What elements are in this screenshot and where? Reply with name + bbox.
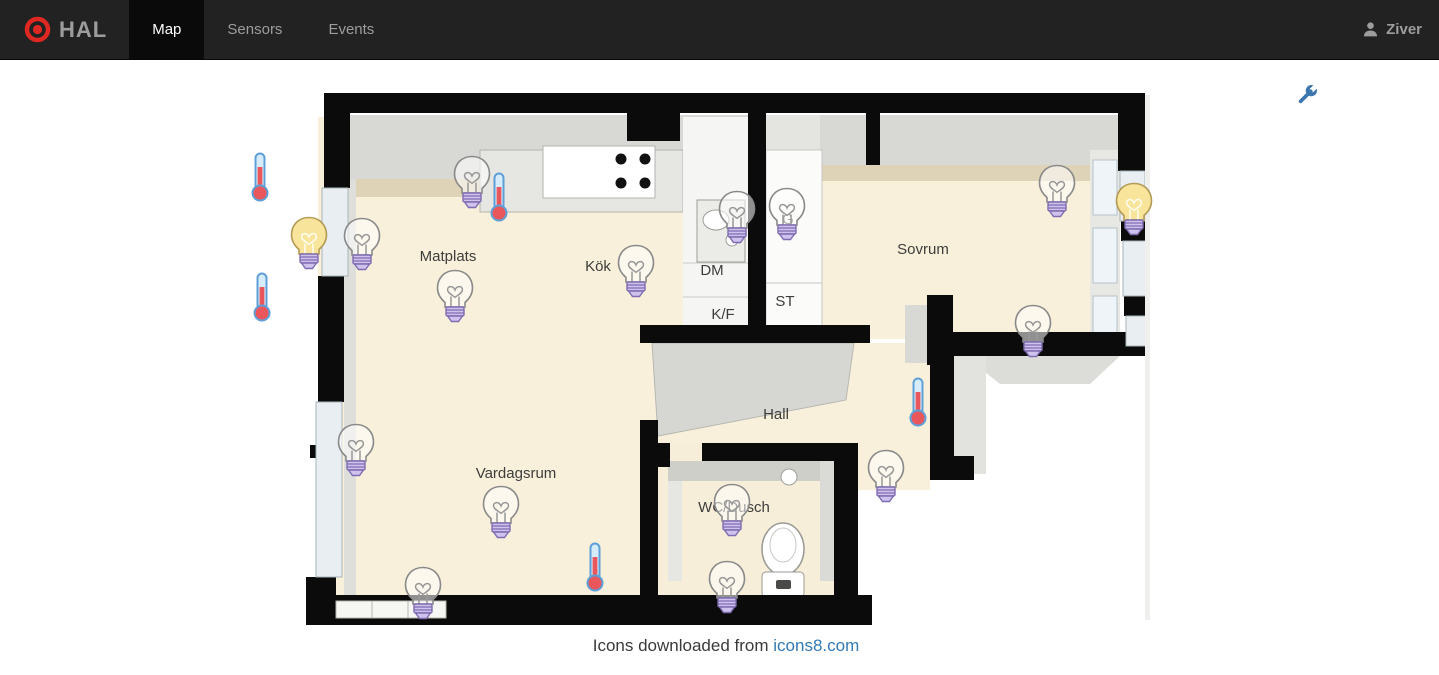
room-label-vardagsrum: Vardagsrum bbox=[476, 465, 557, 482]
sensor-light-hall[interactable] bbox=[865, 449, 907, 503]
sensor-light-wc-south[interactable] bbox=[706, 560, 748, 614]
nav-tabs: Map Sensors Events bbox=[129, 0, 397, 59]
floorplan-image: MatplatsKökDMK/FSTGSovrumHallVardagsrumW… bbox=[300, 88, 1152, 630]
sensor-light-sovrum-window[interactable] bbox=[1036, 164, 1078, 218]
room-label-st: ST bbox=[775, 293, 794, 310]
navbar: HAL Map Sensors Events Ziver bbox=[0, 0, 1439, 60]
sensor-light-sovrum-wall-on[interactable] bbox=[1113, 182, 1155, 236]
brand[interactable]: HAL bbox=[0, 0, 129, 59]
sensor-light-kok[interactable] bbox=[615, 244, 657, 298]
tab-events[interactable]: Events bbox=[305, 0, 397, 59]
sensor-light-left-wall-on[interactable] bbox=[288, 216, 330, 270]
room-label-hall: Hall bbox=[763, 406, 789, 423]
sensor-light-left-wall-off[interactable] bbox=[341, 217, 383, 271]
tab-sensors[interactable]: Sensors bbox=[204, 0, 305, 59]
sensor-light-vardagsrum[interactable] bbox=[480, 485, 522, 539]
sensor-light-matplats-top[interactable] bbox=[451, 155, 493, 209]
target-logo-icon bbox=[24, 16, 51, 43]
sensor-thermometer-matplats[interactable] bbox=[488, 172, 510, 222]
user-menu[interactable]: Ziver bbox=[1362, 0, 1439, 59]
sensor-thermometer-left-lower[interactable] bbox=[251, 272, 273, 322]
brand-text: HAL bbox=[59, 17, 107, 43]
sensor-thermometer-left-upper[interactable] bbox=[249, 152, 271, 202]
sensor-light-vardagsrum-south[interactable] bbox=[402, 566, 444, 620]
room-label-k-k: Kök bbox=[585, 258, 611, 275]
settings-wrench-icon[interactable] bbox=[1294, 82, 1320, 108]
user-name: Ziver bbox=[1386, 21, 1422, 38]
app-screen: HAL Map Sensors Events Ziver bbox=[0, 0, 1439, 675]
room-label-matplats: Matplats bbox=[420, 248, 477, 265]
user-icon bbox=[1362, 21, 1379, 38]
sensor-light-sovrum-south[interactable] bbox=[1012, 304, 1054, 358]
sensor-light-kok-sink[interactable] bbox=[716, 190, 758, 244]
sensor-light-matplats[interactable] bbox=[434, 269, 476, 323]
room-label-sovrum: Sovrum bbox=[897, 241, 949, 258]
sensor-thermometer-vardagsrum[interactable] bbox=[584, 542, 606, 592]
tab-map[interactable]: Map bbox=[129, 0, 204, 59]
icons8-link[interactable]: icons8.com bbox=[773, 636, 859, 655]
room-label-k-f: K/F bbox=[711, 306, 734, 323]
sensor-light-wc[interactable] bbox=[711, 483, 753, 537]
sensor-light-vardagsrum-window[interactable] bbox=[335, 423, 377, 477]
caption-text: Icons downloaded from bbox=[593, 636, 769, 655]
footer-caption: Icons downloaded from icons8.com bbox=[300, 636, 1152, 656]
sensor-thermometer-hall[interactable] bbox=[907, 377, 929, 427]
room-label-dm: DM bbox=[700, 262, 723, 279]
sensor-light-garderob[interactable] bbox=[766, 187, 808, 241]
